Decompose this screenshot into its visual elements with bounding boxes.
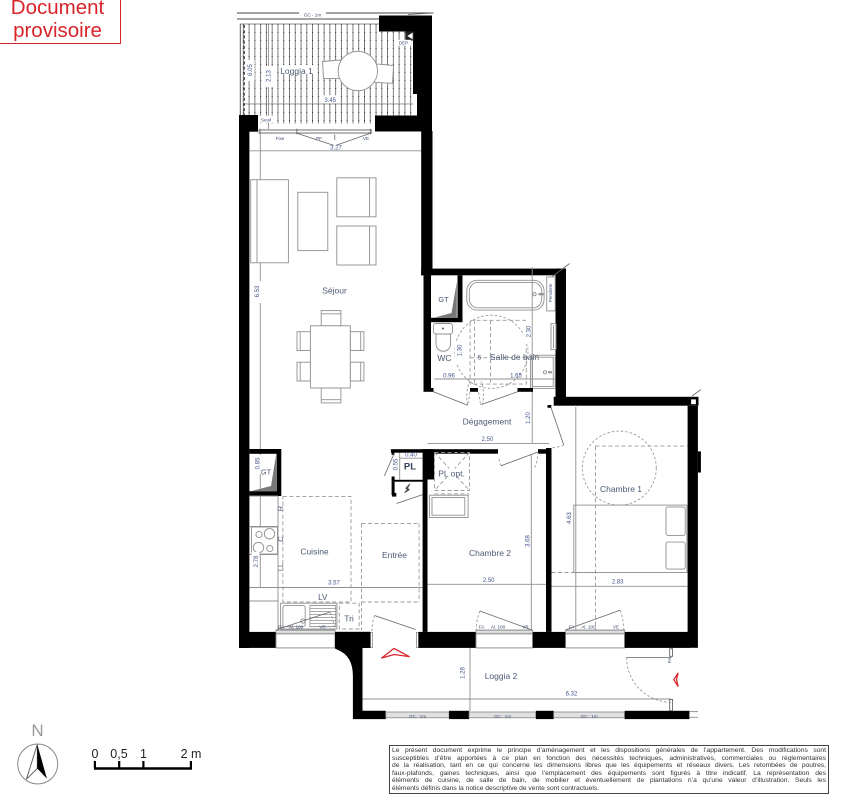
svg-text:N: N xyxy=(31,721,43,740)
svg-text:0: 0 xyxy=(92,747,99,761)
svg-text:Fixe: Fixe xyxy=(276,136,285,141)
svg-text:VE: VE xyxy=(363,136,369,141)
svg-text:FA: FA xyxy=(569,625,576,630)
svg-text:2.83: 2.83 xyxy=(612,580,624,586)
svg-text:0.55: 0.55 xyxy=(394,458,400,470)
svg-text:6.05: 6.05 xyxy=(248,64,254,76)
svg-text:Penderie: Penderie xyxy=(548,283,553,302)
svg-text:1.20: 1.20 xyxy=(526,412,532,424)
svg-text:FA: FA xyxy=(667,657,672,664)
svg-text:0,5: 0,5 xyxy=(110,747,127,761)
svg-text:GT: GT xyxy=(261,468,272,477)
svg-text:Loggia 1: Loggia 1 xyxy=(280,66,313,76)
svg-text:PL: PL xyxy=(404,462,416,473)
svg-text:FA: FA xyxy=(278,625,285,630)
svg-text:3.45: 3.45 xyxy=(324,98,336,104)
svg-text:Tri: Tri xyxy=(344,614,354,624)
svg-text:Al. 100: Al. 100 xyxy=(491,625,506,630)
svg-text:R: R xyxy=(276,505,285,511)
svg-text:LV: LV xyxy=(318,593,328,602)
svg-text:2.30: 2.30 xyxy=(526,325,532,337)
svg-text:6.32: 6.32 xyxy=(566,692,578,698)
svg-text:PL opt.: PL opt. xyxy=(438,469,465,479)
svg-text:5: 5 xyxy=(478,355,482,362)
svg-text:VE: VE xyxy=(613,625,619,630)
svg-text:2.50: 2.50 xyxy=(482,437,494,443)
svg-text:4.63: 4.63 xyxy=(567,512,573,524)
svg-text:2.50: 2.50 xyxy=(483,578,495,584)
svg-text:Séjour: Séjour xyxy=(322,286,347,296)
svg-text:3.68: 3.68 xyxy=(526,535,532,547)
svg-text:VR: VR xyxy=(319,625,326,630)
svg-text:Chambre 1: Chambre 1 xyxy=(600,484,642,494)
svg-text:1.65: 1.65 xyxy=(510,373,522,379)
svg-text:0.96: 0.96 xyxy=(443,373,455,379)
svg-text:1: 1 xyxy=(140,747,147,761)
svg-text:Al. 100: Al. 100 xyxy=(581,625,596,630)
svg-text:Dégagement: Dégagement xyxy=(463,417,512,427)
svg-text:C: C xyxy=(276,536,285,542)
svg-text:Chambre 2: Chambre 2 xyxy=(469,548,511,558)
svg-text:GC : 1m: GC : 1m xyxy=(494,714,511,719)
svg-text:2 m: 2 m xyxy=(181,747,202,761)
svg-text:2.13: 2.13 xyxy=(267,70,273,82)
svg-text:6.53: 6.53 xyxy=(255,285,261,297)
svg-text:1.28: 1.28 xyxy=(461,667,467,679)
svg-text:Seuil: Seuil xyxy=(261,118,271,123)
svg-text:2.78: 2.78 xyxy=(254,555,260,567)
svg-text:WC: WC xyxy=(437,353,451,363)
svg-text:GC : 1m: GC : 1m xyxy=(409,714,426,719)
svg-text:DEP: DEP xyxy=(399,41,408,46)
svg-text:Cuisine: Cuisine xyxy=(300,547,329,557)
svg-text:Al. 100: Al. 100 xyxy=(289,625,304,630)
svg-text:0.40: 0.40 xyxy=(405,453,417,459)
svg-text:3.57: 3.57 xyxy=(328,581,340,587)
svg-text:GC : 1m: GC : 1m xyxy=(581,714,598,719)
svg-text:GC - 1m: GC - 1m xyxy=(304,12,322,17)
svg-text:Entrée: Entrée xyxy=(382,550,407,560)
svg-text:GT: GT xyxy=(438,295,449,304)
svg-text:Loggia 2: Loggia 2 xyxy=(485,671,518,681)
svg-text:VR: VR xyxy=(522,625,529,630)
svg-text:0.85: 0.85 xyxy=(255,457,261,469)
svg-text:LL: LL xyxy=(276,563,285,571)
svg-text:FA: FA xyxy=(479,625,486,630)
svg-text:1.30: 1.30 xyxy=(458,344,464,356)
